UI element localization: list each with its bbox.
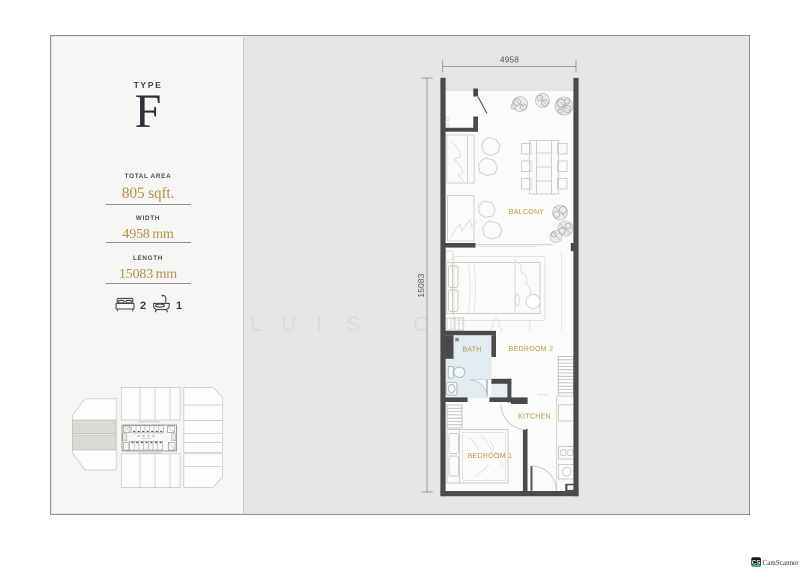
svg-text:BATH: BATH [462,347,481,354]
svg-text:L: L [250,313,262,336]
svg-text:4958: 4958 [500,56,519,65]
svg-text:A: A [489,313,503,336]
svg-text:BALCONY: BALCONY [509,209,545,216]
svg-text:BEDROOM 2: BEDROOM 2 [509,346,554,353]
svg-text:S: S [346,313,360,336]
svg-text:15083: 15083 [416,273,426,297]
svg-text:C: C [413,313,428,336]
svg-text:CS: CS [752,559,761,566]
svg-text:BEDROOM 1: BEDROOM 1 [468,453,513,460]
svg-text:CamScanner: CamScanner [763,560,800,567]
svg-text:KITCHEN: KITCHEN [518,414,551,421]
svg-text:U: U [281,313,296,336]
svg-text:I: I [316,313,322,336]
svg-text:H: H [451,313,466,336]
